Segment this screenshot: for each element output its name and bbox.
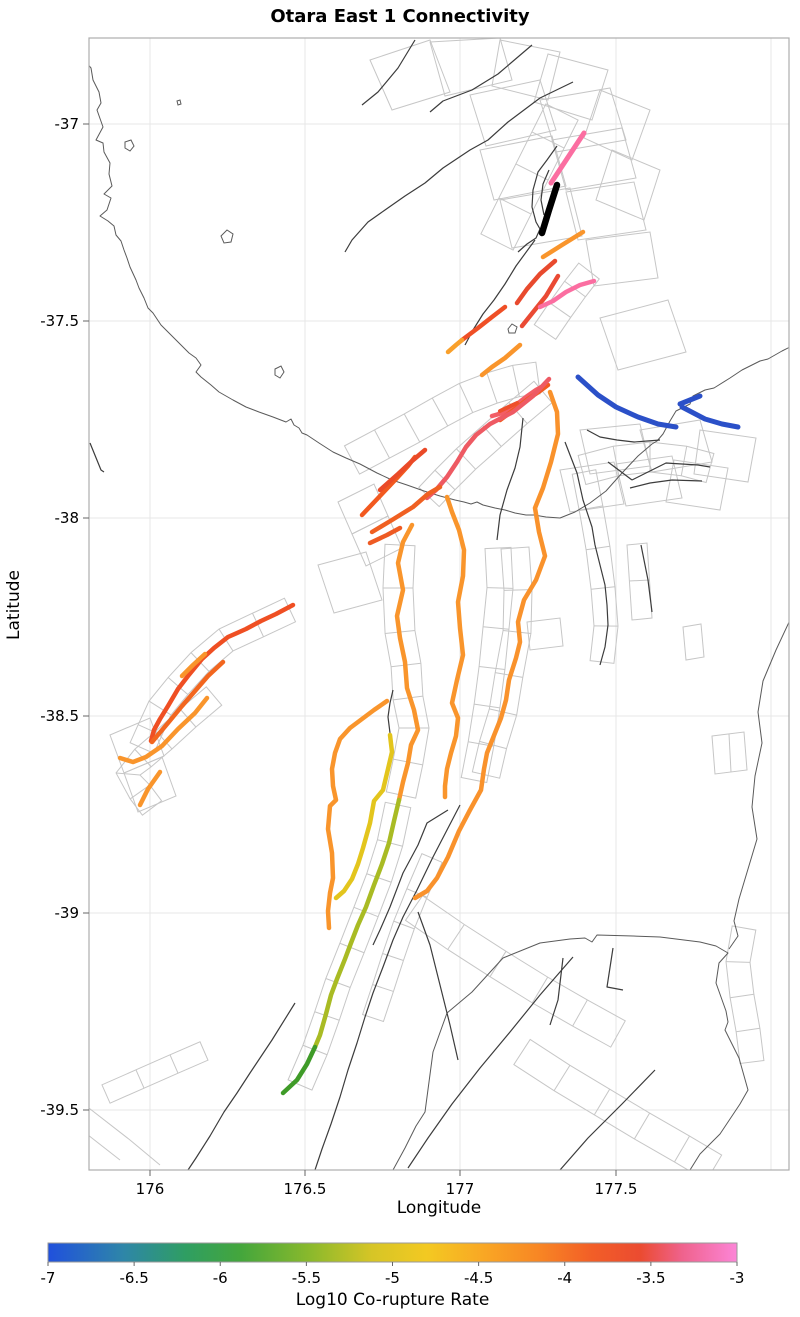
colorbar-tick-label: -3 [730,1269,745,1287]
fault-trace [408,957,573,1168]
map-plot: 176176.5177177.5-37-37.5-38-38.5-39-39.5… [0,0,800,1317]
gray-line [85,1105,160,1165]
coastline-layer [85,61,790,1170]
fault-patch-quad [600,300,686,370]
fault-patch-quad [584,90,650,160]
corupture-long-line-C [415,392,558,898]
fault-patch-rung [736,1028,760,1032]
fault-patch-rung [479,667,505,670]
fault-trace [188,1003,295,1170]
gray-line [629,580,650,581]
fault-patch-quad [430,38,512,96]
fault-patch-rung [432,398,448,426]
x-tick-label: 177 [446,1180,475,1198]
fault-patch-quad [527,618,563,650]
fault-patch-quad [694,430,756,482]
corupture-yellow-line [336,735,392,898]
fault-patch-quad [534,54,608,120]
corupture-rose-long [427,379,549,498]
colorbar-tick-label: -5 [385,1269,400,1287]
corupture-orange-ne-segment [543,232,583,257]
fault-trace [362,40,415,105]
island [508,324,517,333]
figure: Otara East 1 Connectivity Latitude Longi… [0,0,800,1317]
coastline [729,620,790,949]
corupture-red-ne-1 [517,261,555,303]
fault-patch-quad [586,232,658,286]
colorbar-tick-label: -3.5 [636,1269,665,1287]
fault-patch-quad [596,150,660,220]
corupture-long-line-B [445,497,464,797]
colorbar-tick-label: -6.5 [119,1269,148,1287]
fault-patch-rung [594,1089,609,1115]
fault-patch-rung [674,1136,689,1162]
fault-patch-quad [560,462,624,512]
fault-patch-rung [730,994,754,997]
fault-patch-quad [683,624,704,660]
corupture-blue-main [578,377,676,427]
colorbar-tick-label: -4.5 [464,1269,493,1287]
colorbar-tick-label: -6 [213,1269,228,1287]
corupture-layer [120,133,738,1093]
fault-patch-rung [591,587,615,589]
grid-layer [89,38,789,1170]
fault-patch-rung [459,383,472,412]
x-tick-label: 177.5 [595,1180,638,1198]
fault-patch-quad [318,552,382,613]
fault-patch-rung [374,430,389,458]
fault-patch-rung [549,303,570,318]
fault-trace [550,958,563,1025]
gray-line [729,734,731,772]
fault-patch-rung [573,1000,588,1026]
fault-patch-rung [474,704,500,708]
y-tick-label: -38.5 [40,707,79,725]
fault-patch-band [472,547,532,778]
corupture-blue-branch-right [682,407,738,427]
fault-trace [497,418,523,540]
fault-patch-layer [85,38,764,1181]
x-tick-label: 176.5 [284,1180,327,1198]
colorbar [48,1243,737,1262]
y-tick-label: -39.5 [40,1101,79,1119]
fault-patch-quad [566,182,646,240]
fault-patch-rung [487,373,497,403]
island [275,366,284,378]
fault-patch-quad [470,80,556,146]
corupture-orange-diag-2 [482,345,520,375]
plot-frame [89,38,789,1170]
y-tick-label: -37 [55,115,80,133]
fault-patch-rung [499,198,531,214]
fault-patch-rung [554,1065,570,1090]
fault-trace [560,1070,655,1170]
coastline [393,935,748,1170]
fault-patch-rung [532,977,547,1003]
gray-line [88,1135,120,1160]
fault-patch-rung [487,588,513,589]
fault-patch-rung [586,546,610,550]
colorbar-tick-label: -7 [41,1269,56,1287]
fault-patch-rung [513,365,520,396]
island [125,140,134,151]
coastline [85,61,790,518]
y-tick-label: -37.5 [40,312,79,330]
fault-trace [641,545,652,612]
corupture-long-line-A [397,525,418,800]
fault-trace [607,948,623,990]
fault-patch-rung [394,921,415,929]
fault-patch-rung [516,164,548,180]
fault-patch-quad [666,460,728,510]
island [221,230,233,243]
fault-trace [388,690,393,733]
fault-patch-rung [726,962,750,963]
fault-patch-quad [370,40,450,110]
fault-trace [90,443,104,472]
tick-label-layer: 176176.5177177.5-37-37.5-38-38.5-39-39.5 [40,115,637,1198]
map-layer [85,38,790,1181]
fault-patch-band [344,362,540,474]
fault-patch-rung [116,773,140,775]
fault-patch-rung [136,1070,144,1088]
fault-patch-rung [483,627,509,630]
y-tick-label: -38 [55,509,80,527]
fault-patch-rung [170,1055,178,1073]
fault-trace [587,430,660,442]
fault-trace [315,805,460,1170]
corupture-long-line-D [328,701,387,928]
island [177,100,181,105]
colorbar-tick-label: -4 [557,1269,572,1287]
corupture-redorange-diag [462,307,505,340]
x-tick-label: 176 [136,1180,165,1198]
fault-patch-rung [404,414,419,442]
fault-patch-rung [634,1113,649,1139]
y-tick-label: -39 [55,904,80,922]
fault-trace [630,480,702,488]
fault-patch-rung [448,925,465,950]
fault-patch-band [405,896,625,1047]
fault-patch-band [102,1042,208,1103]
colorbar-tick-label: -5.5 [292,1269,321,1287]
